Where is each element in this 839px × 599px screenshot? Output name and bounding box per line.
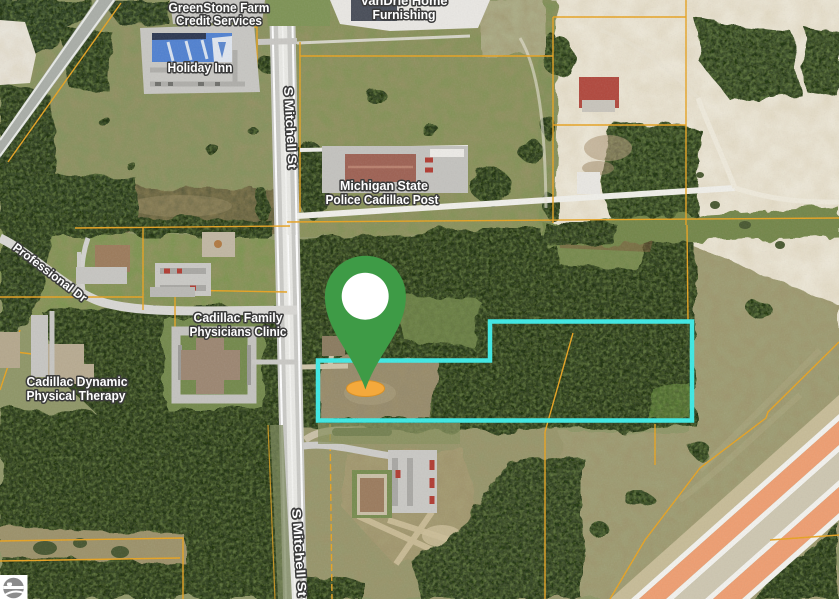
svg-text:Holiday Inn: Holiday Inn (168, 60, 233, 75)
svg-text:Police Cadillac Post: Police Cadillac Post (326, 193, 440, 207)
svg-text:Credit Services: Credit Services (176, 14, 262, 28)
svg-text:Cadillac Family: Cadillac Family (194, 311, 283, 325)
svg-text:Michigan State: Michigan State (340, 179, 428, 193)
svg-text:VanDrie Home: VanDrie Home (361, 0, 448, 8)
svg-text:GreenStone Farm: GreenStone Farm (169, 1, 270, 15)
svg-text:Furnishing: Furnishing (373, 8, 436, 22)
svg-text:Physicians Clinic: Physicians Clinic (190, 325, 287, 339)
svg-text:Physical Therapy: Physical Therapy (27, 389, 126, 403)
svg-text:Cadillac Dynamic: Cadillac Dynamic (27, 375, 128, 389)
